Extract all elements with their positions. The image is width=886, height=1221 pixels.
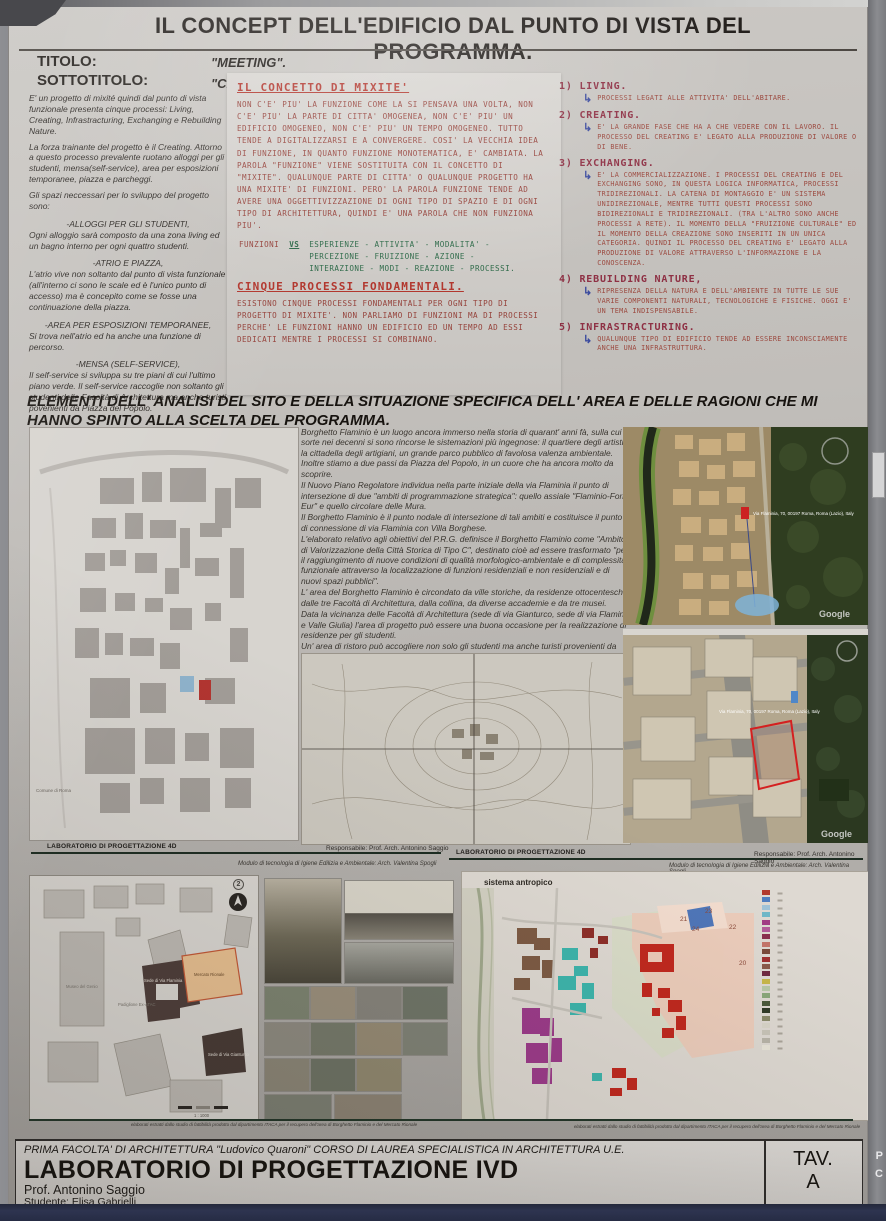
site-analysis-text: Borghetto Flaminio è un luogo ancora imm… <box>301 427 631 663</box>
block-heading: -ATRIO E PIAZZA, <box>29 258 227 269</box>
photo-thumbnail <box>265 1095 331 1119</box>
site-highlight-blue <box>180 676 194 692</box>
itaca-caption-right: elaborati estratti dallo studio di fatti… <box>567 1124 867 1129</box>
photo-thumbnail <box>357 1059 401 1091</box>
modulo-left: Modulo di tecnologia di Igiene Edilizia … <box>238 861 436 867</box>
zone-number: 21 <box>680 916 687 923</box>
paragraph: Il Borghetto Flaminio è il punto nodale … <box>301 512 631 533</box>
figure-ground-map-drawing <box>30 428 298 840</box>
arrow-icon: ↳ <box>583 171 592 269</box>
satellite-image-wide: Via Flaminia, 70, 00197 Roma, Roma (Lazi… <box>623 427 869 625</box>
paragraph: E' un progetto di mixité quindi dal punt… <box>29 93 227 137</box>
process-name: INFRASTRACTURING. <box>579 322 695 333</box>
mercato-label: Mercato Rionale <box>194 972 225 977</box>
site-highlight-red <box>199 680 211 700</box>
list-item: 2) CREATING. ↳E' LA GRANDE FASE CHE HA A… <box>559 110 865 153</box>
sistema-antropico-map: sistema antropico <box>461 871 869 1121</box>
process-number: 2) <box>559 110 573 121</box>
list-item: 5) INFRASTRACTURING. ↳QUALUNQUE TIPO DI … <box>559 322 865 355</box>
caption-rule <box>31 852 441 854</box>
topographic-map <box>301 653 631 845</box>
photo-thumbnail <box>265 1023 309 1055</box>
lab-name-right: LABORATORIO DI PROGETTAZIONE 4D <box>456 849 586 856</box>
concept-description-column: E' un progetto di mixité quindi dal punt… <box>29 93 227 416</box>
zone-number: 24 <box>692 926 699 933</box>
paragraph: Borghetto Flaminio è un luogo ancora imm… <box>301 427 631 479</box>
tav-label: TAV. <box>766 1148 860 1171</box>
block-body: L'atrio vive non soltanto dal punto di v… <box>29 269 227 313</box>
process-name: LIVING. <box>579 81 627 92</box>
geo-label: Via Flaminia, 70, 00197 Roma, Roma (Lazi… <box>753 511 854 516</box>
faculty-line: PRIMA FACOLTA' DI ARCHITETTURA "Ludovico… <box>24 1144 625 1156</box>
process-name: CREATING. <box>579 110 640 121</box>
sede-gianturco-label: Sede di Via Gianturco <box>208 1052 249 1057</box>
block-heading: -AREA PER ESPOSIZIONI TEMPORANEE, <box>29 320 227 331</box>
paragraph: L' area del Borghetto Flaminio è circond… <box>301 587 631 608</box>
process-detail: E' LA GRANDE FASE CHE HA A CHE VEDERE CO… <box>597 123 865 153</box>
funzioni-vs-row: FUNZIONI VS ESPERIENZE - ATTIVITA' - MOD… <box>239 239 551 275</box>
google-watermark: Google <box>821 829 852 839</box>
page-title: IL CONCEPT DELL'EDIFICIO DAL PUNTO DI VI… <box>79 13 827 65</box>
satellite-image-close: Via Flaminia, 70, 00197 Roma, Roma (Lazi… <box>623 629 869 843</box>
process-number: 4) <box>559 274 573 285</box>
process-list: 1) LIVING. ↳PROCESSI LEGATI ALLE ATTIVIT… <box>559 81 865 359</box>
arrow-icon: ↳ <box>583 94 592 105</box>
site-boundary-outline <box>751 721 799 789</box>
tav-cell: TAV. A <box>764 1141 860 1204</box>
notes-heading-mixite: IL CONCETTO DI MIXITE' <box>237 81 551 94</box>
photo-thumbnail <box>311 1023 355 1055</box>
photo-thumbnail <box>357 987 401 1019</box>
title-divider <box>19 49 857 51</box>
paragraph: L'elaborato relativo agli obiettivi del … <box>301 534 631 586</box>
photo-thumbnail <box>265 879 341 983</box>
arrow-icon: ↳ <box>583 123 592 153</box>
map-marker <box>741 507 749 519</box>
photo-thumbnail <box>311 1059 355 1091</box>
itaca-caption-left: elaborati estratti dallo studio di fatti… <box>79 1122 469 1127</box>
sede-flaminia-label: Sede di Via Flaminia <box>144 978 183 983</box>
list-item: 1) LIVING. ↳PROCESSI LEGATI ALLE ATTIVIT… <box>559 81 865 105</box>
google-watermark: Google <box>819 609 850 619</box>
photo-thumbnail <box>265 987 309 1019</box>
tav-value: A <box>766 1171 860 1194</box>
display-frame-bottom <box>0 1204 886 1221</box>
paragraph: Gli spazi neccessari per lo sviluppo del… <box>29 190 227 212</box>
photo-thumbnail <box>335 1095 401 1119</box>
poster: IL CONCEPT DELL'EDIFICIO DAL PUNTO DI VI… <box>8 6 868 1205</box>
sistema-antropico-label: sistema antropico <box>484 878 552 887</box>
lab-title: LABORATORIO DI PROGETTAZIONE IVD <box>24 1156 518 1185</box>
photo-thumbnail <box>345 943 453 983</box>
zone-number: 22 <box>729 924 736 931</box>
process-name: EXCHANGING. <box>579 158 654 169</box>
map-marker <box>791 691 798 703</box>
notes-heading-processi: CINQUE PROCESSI FONDAMENTALI. <box>237 280 551 293</box>
site-plan: Museo del Genio Padiglione Ex-ATAC Sede … <box>29 875 259 1121</box>
site-plan-drawing: Museo del Genio Padiglione Ex-ATAC Sede … <box>30 876 258 1120</box>
vs-list: ESPERIENZE - ATTIVITA' - MODALITA' - PER… <box>309 239 515 275</box>
process-number: 1) <box>559 81 573 92</box>
photo-group-marker: 2 <box>233 879 244 890</box>
map-legend <box>762 890 770 1050</box>
geo-label: Via Flaminia, 70, 00197 Roma, Roma (Lazi… <box>719 709 820 714</box>
photo-thumbnail <box>403 987 447 1019</box>
display-frame-top <box>0 0 886 7</box>
handwritten-notes-sheet: IL CONCETTO DI MIXITE' NON C'E' PIU' LA … <box>227 73 561 395</box>
process-detail: E' LA COMMERCIALIZZAZIONE. I PROCESSI DE… <box>597 171 865 269</box>
funzioni-label: FUNZIONI <box>239 239 279 275</box>
professor-name: Prof. Antonino Saggio <box>24 1183 145 1197</box>
lab-name-left: LABORATORIO DI PROGETTAZIONE 4D <box>47 843 177 850</box>
sottotitolo-label: SOTTOTITOLO: <box>37 72 148 89</box>
process-detail: RIPRESENZA DELLA NATURA E DELL'AMBIENTE … <box>597 287 865 317</box>
list-item: 4) REBUILDING NATURE, ↳RIPRESENZA DELLA … <box>559 274 865 317</box>
zone-number: 23 <box>705 908 712 915</box>
satellite-close-drawing: Via Flaminia, 70, 00197 Roma, Roma (Lazi… <box>623 629 869 843</box>
block-heading: -ALLOGGI PER GLI STUDENTI, <box>29 219 227 230</box>
list-item: 3) EXCHANGING. ↳E' LA COMMERCIALIZZAZION… <box>559 158 865 269</box>
figure-ground-map: Comune di Roma <box>29 427 299 841</box>
paragraph: Data la vicinanza delle Facoltà di Archi… <box>301 609 631 640</box>
paragraph: Il Nuovo Piano Regolatore individua nell… <box>301 480 631 511</box>
comune-di-roma-label: Comune di Roma <box>36 788 71 793</box>
photo-thumbnail <box>265 1059 309 1091</box>
anthropic-map-drawing <box>462 888 758 1120</box>
process-number: 3) <box>559 158 573 169</box>
process-detail: PROCESSI LEGATI ALLE ATTIVITA' DELL'ABIT… <box>597 94 790 105</box>
notes-body2: ESISTONO CINQUE PROCESSI FONDAMENTALI PE… <box>237 298 551 347</box>
arrow-icon: ↳ <box>583 287 592 317</box>
display-frame-right <box>868 0 886 1221</box>
process-number: 5) <box>559 322 573 333</box>
photographed-poster-scene: IL CONCEPT DELL'EDIFICIO DAL PUNTO DI VI… <box>0 0 886 1221</box>
adjacent-poster-tag <box>872 452 885 498</box>
scale-label: 1 : 1000 <box>194 1113 210 1118</box>
title-block: PRIMA FACOLTA' DI ARCHITETTURA "Ludovico… <box>15 1139 863 1205</box>
arrow-icon: ↳ <box>583 335 592 355</box>
museo-label: Museo del Genio <box>66 984 98 989</box>
block-body: Ogni alloggio sarà composto da una zona … <box>29 230 227 252</box>
titolo-label: TITOLO: <box>37 53 97 70</box>
padiglione-label: Padiglione Ex-ATAC <box>118 1002 156 1007</box>
adjacent-poster-fragment: C <box>875 1168 883 1180</box>
responsabile-left: Responsabile: Prof. Arch. Antonino Saggi… <box>326 845 449 852</box>
process-name: REBUILDING NATURE, <box>579 274 702 285</box>
map-highlight-ellipse <box>735 594 779 616</box>
paragraph: La forza trainante del progetto è il Cre… <box>29 142 227 186</box>
notes-body: NON C'E' PIU' LA FUNZIONE COME LA SI PEN… <box>237 99 551 233</box>
titolo-value: "MEETING". <box>211 55 286 70</box>
site-analysis-heading: ELEMENTI DELL' ANALISI DEL SITO E DELLA … <box>27 393 859 431</box>
satellite-wide-drawing: Via Flaminia, 70, 00197 Roma, Roma (Lazi… <box>623 427 869 625</box>
photo-thumbnail <box>403 1023 447 1055</box>
zone-number: 20 <box>739 960 746 967</box>
adjacent-poster-fragment: P <box>876 1150 883 1162</box>
photo-thumbnail <box>311 987 355 1019</box>
vs-label: VS <box>289 239 299 275</box>
block-body: Si trova nell'atrio ed ha anche una funz… <box>29 331 227 353</box>
block-heading: -MENSA (SELF-SERVICE), <box>29 359 227 370</box>
process-detail: QUALUNQUE TIPO DI EDIFICIO TENDE AD ESSE… <box>597 335 865 355</box>
photo-thumbnail <box>345 881 453 939</box>
photo-thumbnail <box>357 1023 401 1055</box>
topographic-map-drawing <box>302 654 630 844</box>
photo-collage <box>263 877 459 1121</box>
bottom-divider <box>29 1119 853 1121</box>
